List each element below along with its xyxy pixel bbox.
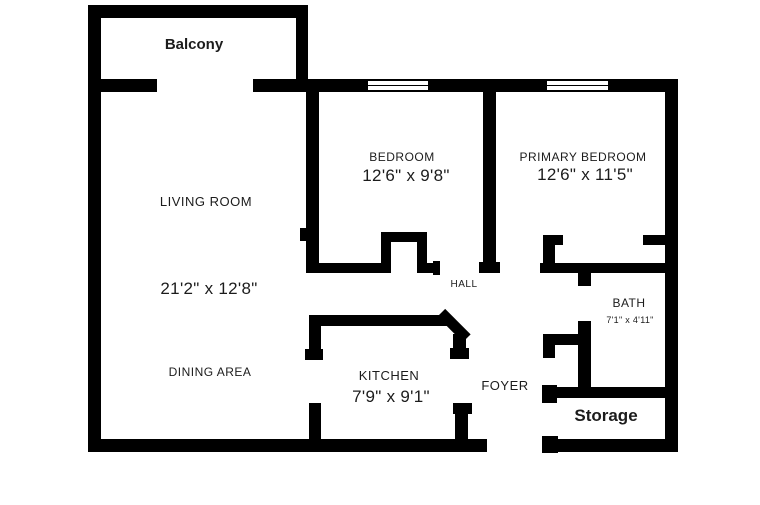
wall-storage-top — [543, 387, 670, 398]
room-label-bedroom: BEDROOM — [369, 151, 435, 163]
wall-storage-bottom-foot — [542, 436, 558, 453]
wall-living-bedroom-divider — [306, 79, 319, 270]
room-dims-living: 21'2" x 12'8" — [160, 280, 257, 297]
wall-foyer-closet-foot — [543, 334, 555, 358]
room-label-hall: HALL — [450, 280, 477, 290]
wall-bath-left-stub — [578, 273, 591, 286]
primary-window-icon — [545, 79, 610, 92]
room-dims-kitchen: 7'9" x 9'1" — [352, 388, 430, 405]
wall-top-segment-3 — [430, 79, 545, 92]
window-pane-line — [368, 85, 428, 87]
wall-outer-left — [88, 5, 101, 452]
room-label-balcony: Balcony — [165, 37, 223, 52]
room-label-bath: BATH — [612, 297, 645, 309]
wall-top-segment-1 — [96, 79, 157, 92]
wall-kitchen-left-upper-foot — [305, 349, 323, 360]
wall-primary-bottom — [540, 263, 668, 273]
wall-kitchen-left-lower — [309, 403, 321, 443]
wall-kitchen-top — [309, 315, 447, 326]
wall-bottom-left — [88, 439, 487, 452]
room-dims-bath: 7'1" x 4'11" — [606, 316, 653, 325]
room-label-primary: PRIMARY BEDROOM — [519, 151, 646, 163]
wall-bottom-right — [542, 439, 678, 452]
wall-bedrooms-divider — [483, 92, 496, 273]
window-pane-line — [547, 85, 608, 87]
room-label-storage: Storage — [574, 407, 637, 424]
bedroom-window-icon — [366, 79, 430, 92]
wall-storage-top-foot — [542, 385, 557, 403]
room-dims-primary: 12'6" x 11'5" — [537, 166, 633, 183]
wall-bedroom-bottom-cap — [433, 261, 440, 275]
wall-primary-closet-stub-left — [543, 235, 563, 245]
room-label-living: LIVING ROOM — [160, 195, 252, 208]
room-label-kitchen: KITCHEN — [359, 369, 420, 382]
wall-divider-bump — [300, 228, 307, 241]
wall-kitchen-right-upper-foot — [450, 348, 469, 359]
room-label-dining: DINING AREA — [169, 366, 252, 378]
wall-primary-closet-stub-right — [643, 235, 666, 245]
floor-plan: Balcony LIVING ROOM 21'2" x 12'8" BEDROO… — [0, 0, 760, 505]
wall-balcony-top — [88, 5, 308, 18]
wall-kitchen-right-lower-cap — [453, 403, 472, 414]
wall-bedrooms-divider-foot — [479, 262, 500, 273]
wall-bedroom-bottom-a — [306, 263, 391, 273]
room-label-foyer: FOYER — [481, 379, 528, 392]
room-dims-bedroom: 12'6" x 9'8" — [362, 167, 449, 184]
